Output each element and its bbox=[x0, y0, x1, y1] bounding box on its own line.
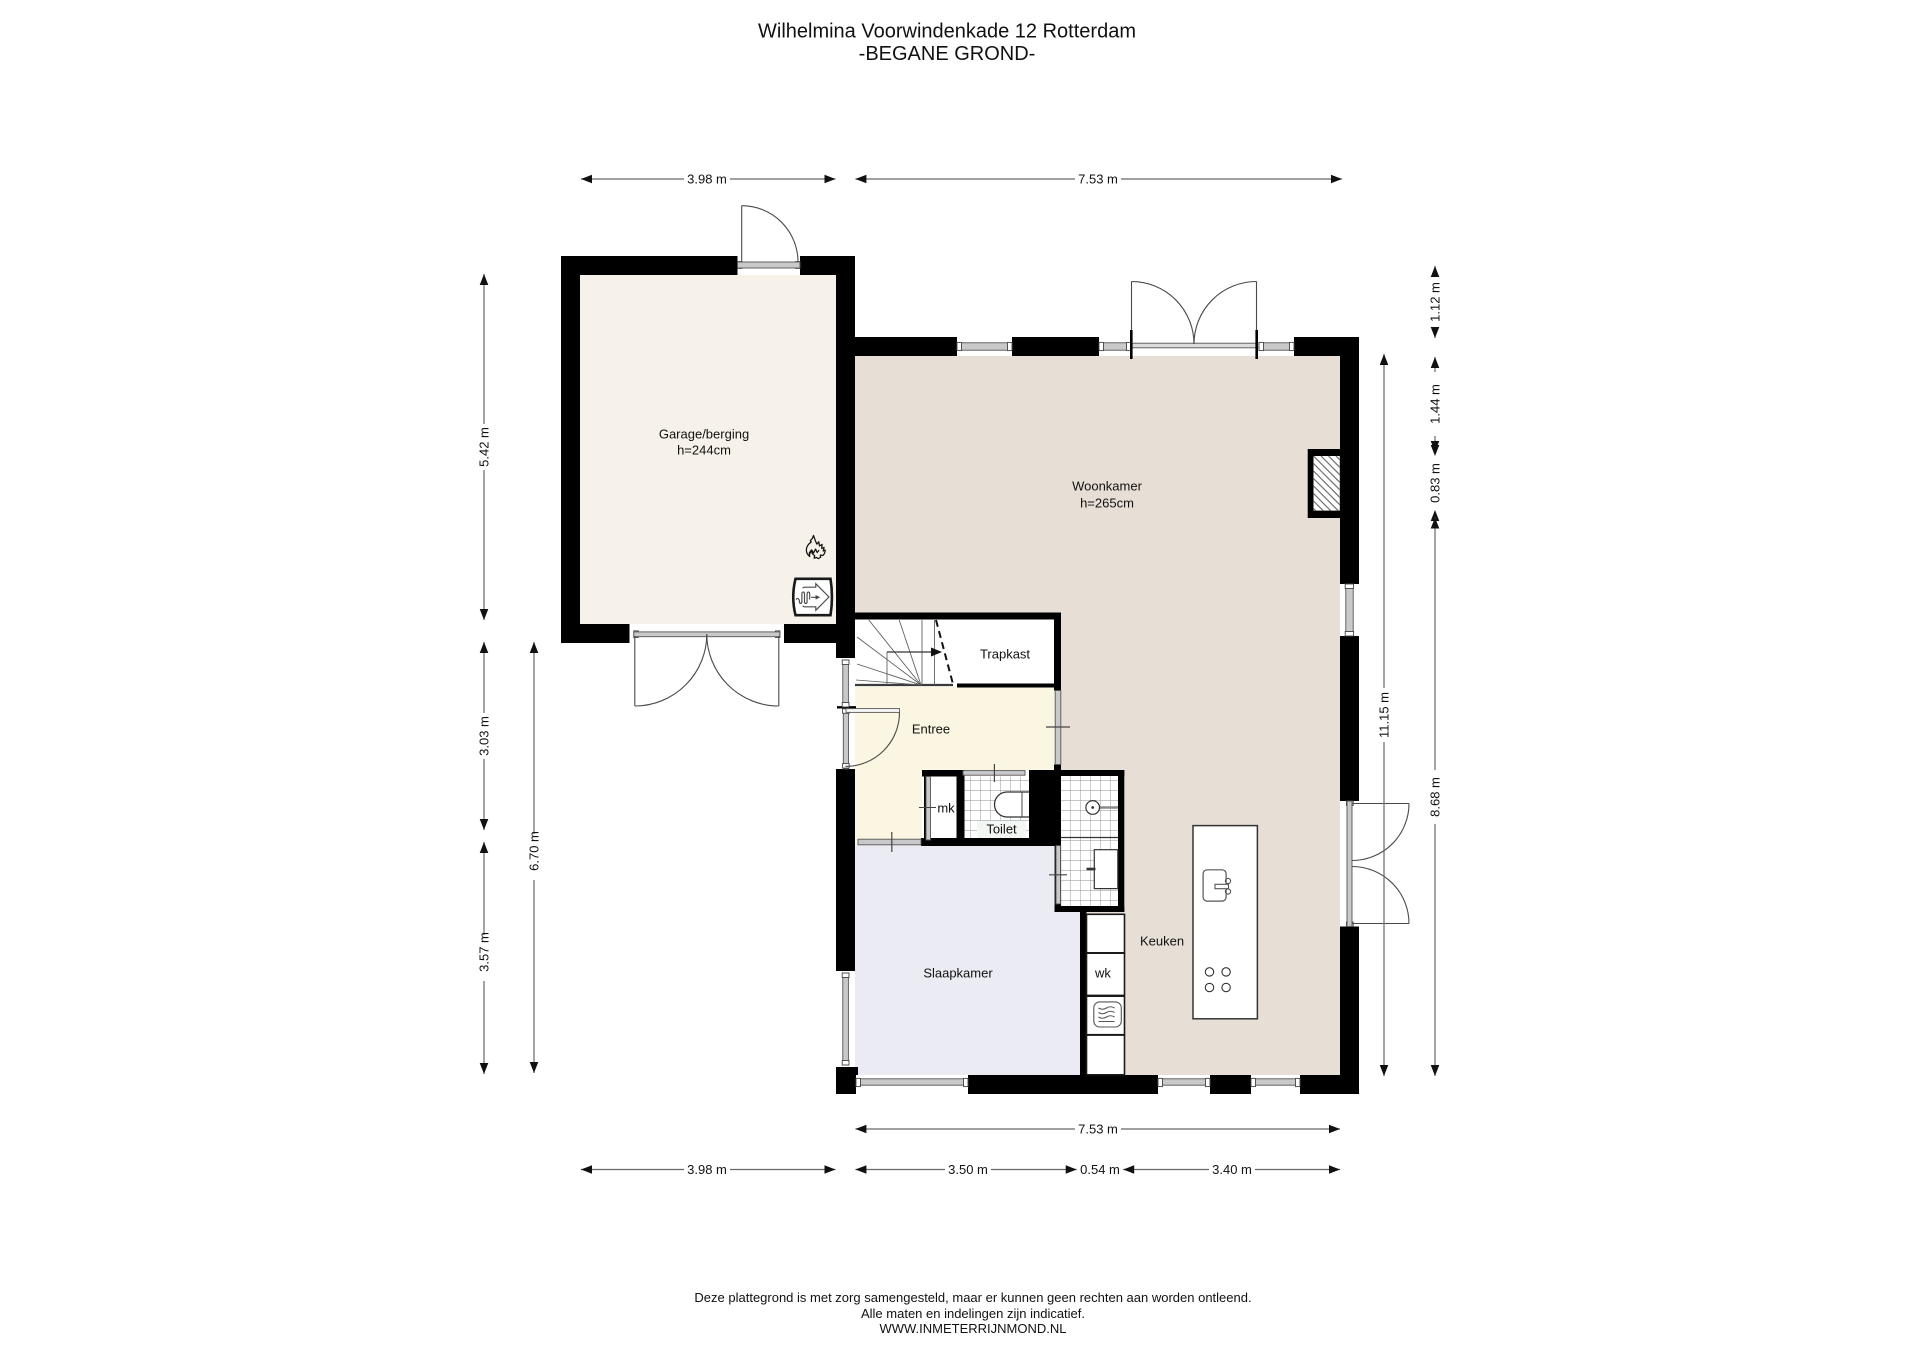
svg-text:h=244cm: h=244cm bbox=[677, 443, 731, 458]
svg-text:5.42 m: 5.42 m bbox=[477, 427, 492, 467]
svg-text:Trapkast: Trapkast bbox=[980, 647, 1030, 662]
svg-text:-BEGANE GROND-: -BEGANE GROND- bbox=[859, 43, 1036, 65]
svg-text:Wilhelmina Voorwindenkade 12 R: Wilhelmina Voorwindenkade 12 Rotterdam bbox=[758, 21, 1136, 43]
svg-text:8.68 m: 8.68 m bbox=[1428, 777, 1443, 817]
svg-text:1.12 m: 1.12 m bbox=[1428, 282, 1443, 322]
svg-text:Slaapkamer: Slaapkamer bbox=[923, 966, 993, 981]
svg-text:3.50 m: 3.50 m bbox=[948, 1162, 988, 1177]
svg-text:h=265cm: h=265cm bbox=[1080, 496, 1134, 511]
svg-text:0.83 m: 0.83 m bbox=[1428, 463, 1443, 503]
svg-text:3.98 m: 3.98 m bbox=[687, 172, 727, 187]
svg-text:Woonkamer: Woonkamer bbox=[1072, 479, 1143, 494]
svg-text:3.57 m: 3.57 m bbox=[477, 932, 492, 972]
svg-text:Garage/berging: Garage/berging bbox=[659, 427, 749, 442]
svg-text:WWW.INMETERRIJNMOND.NL: WWW.INMETERRIJNMOND.NL bbox=[879, 1321, 1066, 1336]
svg-text:wk: wk bbox=[1094, 966, 1111, 981]
svg-text:Toilet: Toilet bbox=[986, 822, 1017, 837]
svg-text:3.03 m: 3.03 m bbox=[477, 716, 492, 756]
svg-text:mk: mk bbox=[937, 801, 955, 816]
svg-text:0.54 m: 0.54 m bbox=[1080, 1162, 1120, 1177]
svg-text:6.70 m: 6.70 m bbox=[527, 831, 542, 871]
svg-text:7.53 m: 7.53 m bbox=[1078, 1122, 1118, 1137]
svg-text:Keuken: Keuken bbox=[1140, 934, 1184, 949]
svg-text:3.98 m: 3.98 m bbox=[687, 1162, 727, 1177]
svg-text:11.15 m: 11.15 m bbox=[1377, 692, 1392, 738]
svg-text:1.44 m: 1.44 m bbox=[1428, 384, 1443, 424]
svg-text:Entree: Entree bbox=[912, 722, 950, 737]
svg-text:7.53 m: 7.53 m bbox=[1078, 172, 1118, 187]
svg-text:Alle maten en indelingen zijn: Alle maten en indelingen zijn indicatief… bbox=[861, 1306, 1085, 1321]
svg-text:3.40 m: 3.40 m bbox=[1212, 1162, 1252, 1177]
svg-text:Deze plattegrond is met zorg s: Deze plattegrond is met zorg samengestel… bbox=[694, 1290, 1251, 1305]
